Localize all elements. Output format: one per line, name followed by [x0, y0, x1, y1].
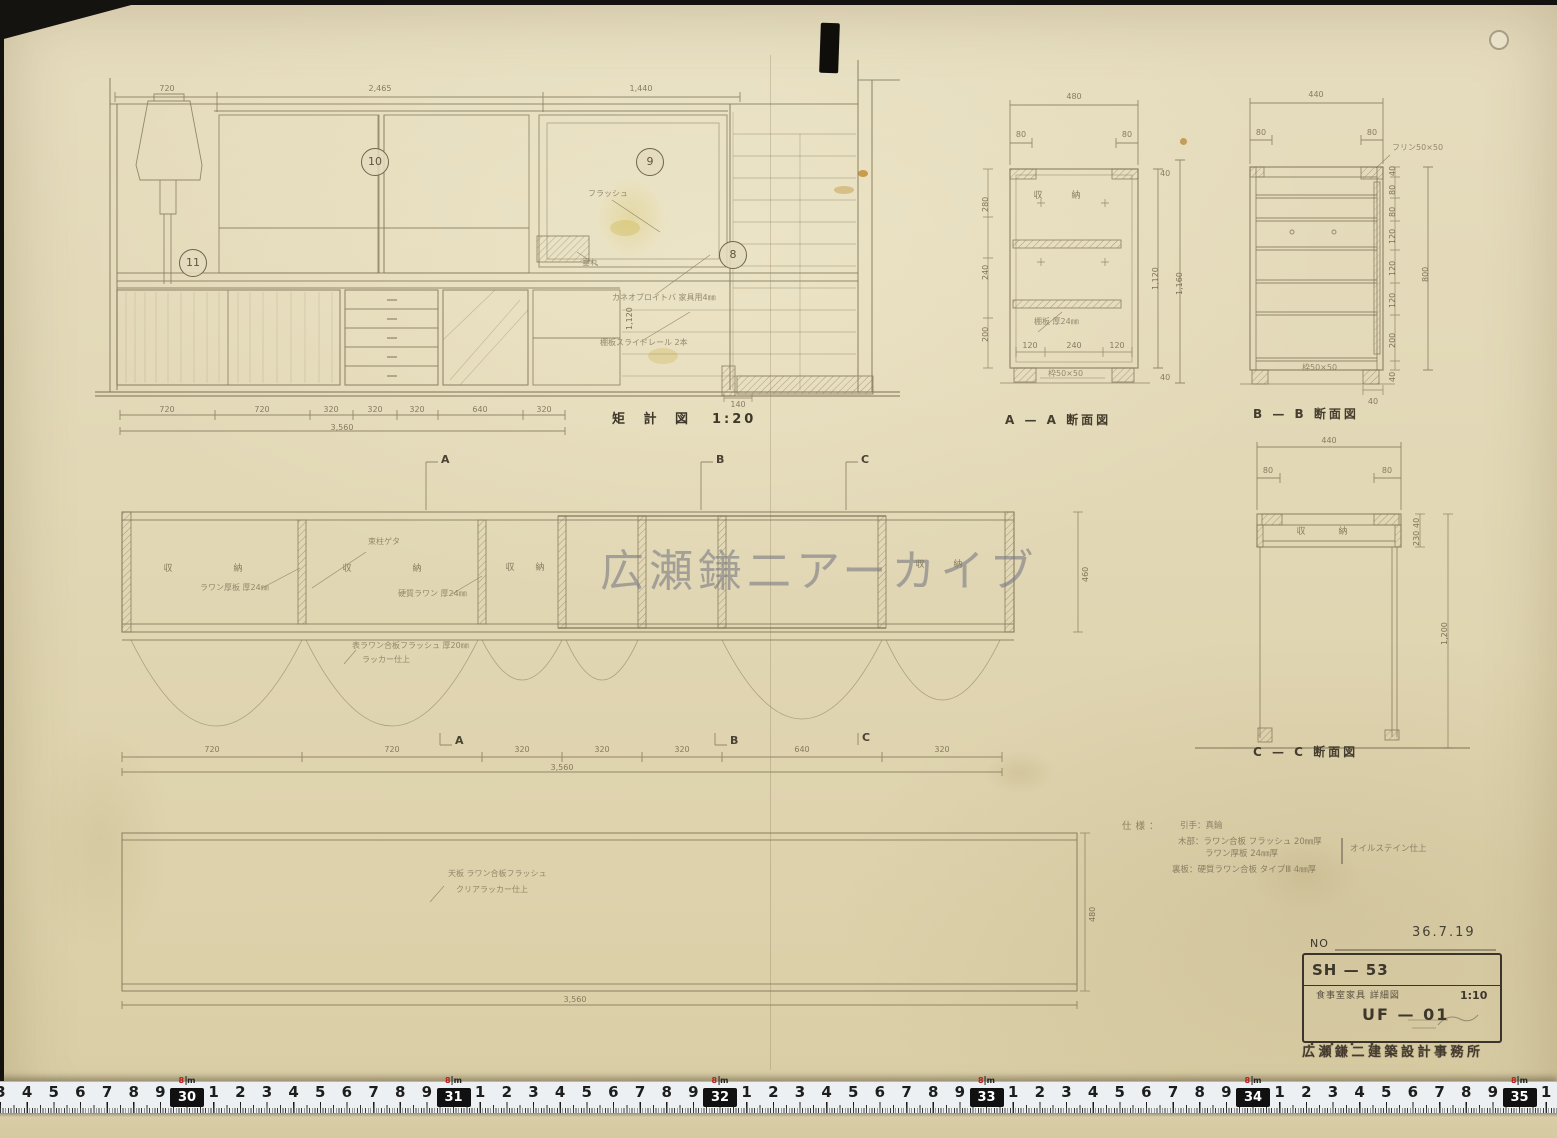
ruler-digit: 6 [608, 1083, 618, 1101]
annotation: クリアラッカー仕上 [456, 886, 528, 895]
ruler-digit: 5 [1115, 1083, 1125, 1101]
ruler-digit: 6 [875, 1083, 885, 1101]
dim-label: 40 [1389, 372, 1398, 382]
annotation: 垂れ [582, 259, 598, 268]
ruler-digit: 9 [1488, 1083, 1498, 1101]
dim-label: 230 [1413, 531, 1422, 546]
spec-title: 仕様： [1122, 822, 1163, 832]
ruler-decade-label: 34 [1236, 1088, 1270, 1107]
dim-label: 3,560 [331, 424, 354, 433]
titleblock-description: 食事室家具 詳細図 [1316, 992, 1400, 1002]
dim-label: 140 [730, 401, 745, 410]
section-marker: A [441, 454, 450, 466]
annotation: 束柱ゲタ [368, 538, 400, 547]
detail-balloon: 9 [636, 148, 664, 176]
ruler-digit: 9 [422, 1083, 432, 1101]
ruler-digit: 3 [262, 1083, 272, 1101]
section-marker: B [730, 735, 738, 747]
titleblock-code: SH — 53 [1312, 962, 1389, 979]
annotation: 天板 ラワン合板フラッシュ [448, 870, 547, 879]
section-title: B — B 断面図 [1253, 408, 1359, 421]
dim-label: 720 [254, 406, 269, 415]
dim-label: 80 [1389, 185, 1398, 195]
ruler-digit: 4 [22, 1083, 32, 1101]
ruler-digit: 3 [795, 1083, 805, 1101]
ruler-meter-label: 8m [445, 1076, 462, 1085]
dim-label: 3,560 [551, 764, 574, 773]
dim-label: 320 [594, 746, 609, 755]
ruler-digit: 8 [661, 1083, 671, 1101]
ruler-digit: 3 [0, 1083, 6, 1101]
dim-label: 800 [1422, 267, 1431, 282]
dim-label: 1,120 [1152, 267, 1161, 290]
ruler-digit: 2 [768, 1083, 778, 1101]
archive-watermark: 広瀬鎌二アーカイブ [600, 535, 1038, 599]
dim-label: 3,560 [564, 996, 587, 1005]
detail-balloon: 11 [179, 249, 207, 277]
ruler-digit: 4 [555, 1083, 565, 1101]
detail-balloon: 8 [719, 241, 747, 269]
ruler-digit: 7 [1434, 1083, 1444, 1101]
annotation: フリン50×50 [1392, 144, 1443, 153]
ruler-digit: 2 [502, 1083, 512, 1101]
ruler-digit: 5 [1381, 1083, 1391, 1101]
dim-label: 1,160 [1176, 272, 1185, 295]
storage-label: 収 納 [915, 561, 972, 571]
dim-label: 80 [1367, 129, 1377, 138]
dim-label: 80 [1016, 131, 1026, 140]
ruler-decade-label: 32 [703, 1088, 737, 1107]
ruler-digit: 6 [75, 1083, 85, 1101]
dim-label: 240 [1066, 342, 1081, 351]
annotation: カネオブロイトバ 家具用4㎜ [612, 294, 716, 303]
ruler-meter-label: 8m [179, 1076, 196, 1085]
annotation: ラワン厚板 厚24㎜ [200, 584, 269, 593]
dim-label: 320 [674, 746, 689, 755]
ruler-digit: 8 [1461, 1083, 1471, 1101]
dim-label: 720 [159, 406, 174, 415]
annotation: 棚板スライドレール 2本 [600, 339, 688, 348]
dim-label: 80 [1256, 129, 1266, 138]
spec-line: 引手：真鍮 [1180, 822, 1223, 831]
storage-label: 収 納 [1296, 528, 1359, 538]
annotation: 棚板 厚24㎜ [1034, 318, 1079, 327]
ruler-digit: 1 [208, 1083, 218, 1101]
ruler-digit: 9 [688, 1083, 698, 1101]
dim-label: 1,200 [1441, 622, 1450, 645]
storage-label: 収 納 [163, 565, 268, 575]
ruler-digit: 2 [235, 1083, 245, 1101]
dim-label: 320 [367, 406, 382, 415]
ruler-digit: 1 [1541, 1083, 1551, 1101]
dim-label: 200 [982, 327, 991, 342]
spec-line: ラワン厚板 24㎜厚 [1205, 850, 1278, 859]
spec-line: オイルステイン仕上 [1350, 845, 1427, 854]
ruler-digit: 6 [1408, 1083, 1418, 1101]
dim-label: 320 [409, 406, 424, 415]
ruler-digit: 5 [582, 1083, 592, 1101]
ruler-digit: 4 [1088, 1083, 1098, 1101]
dim-label: 720 [384, 746, 399, 755]
titleblock-date: 36.7.19 [1412, 926, 1476, 940]
dim-label: 640 [472, 406, 487, 415]
ruler-digit: 5 [49, 1083, 59, 1101]
drawing-scale: 1:20 [712, 413, 756, 427]
elevation-drawing [95, 60, 900, 435]
ruler-meter-label: 8m [1245, 1076, 1262, 1085]
spec-line: 木部：ラワン合板 フラッシュ 20㎜厚 [1178, 838, 1322, 847]
ruler-digit: 6 [342, 1083, 352, 1101]
dim-label: 40 [1160, 170, 1170, 179]
section-title: A — A 断面図 [1005, 414, 1111, 427]
office-stamp: 広瀬鎌二建築設計事務所 [1302, 1046, 1484, 1060]
section-title: C — C 断面図 [1253, 746, 1358, 759]
ruler-digit: 4 [288, 1083, 298, 1101]
dim-label: 40 [1368, 398, 1378, 407]
dim-label: 460 [1082, 567, 1091, 582]
ruler-digit: 7 [368, 1083, 378, 1101]
dim-label: 200 [1389, 333, 1398, 348]
ruler-digit: 9 [955, 1083, 965, 1101]
ruler-digit: 2 [1301, 1083, 1311, 1101]
dim-label: 320 [514, 746, 529, 755]
ruler-meter-label: 8m [1511, 1076, 1528, 1085]
ruler-digit: 4 [1354, 1083, 1364, 1101]
annotation: ラッカー仕上 [362, 656, 410, 665]
ruler-digit: 1 [1274, 1083, 1284, 1101]
ruler-digit: 7 [102, 1083, 112, 1101]
ruler-digit: 7 [901, 1083, 911, 1101]
storage-label: 収 納 [1033, 192, 1090, 202]
titleblock-drawing-number: UF — 01 [1362, 1006, 1449, 1024]
measuring-tape: 3456789308m123456789318m123456789328m123… [0, 1081, 1557, 1114]
dim-label: 80 [1382, 467, 1392, 476]
ruler-digit: 7 [635, 1083, 645, 1101]
ruler-meter-label: 8m [712, 1076, 729, 1085]
annotation: 枠50×50 [1302, 364, 1337, 373]
section-marker: C [862, 732, 870, 744]
ruler-digit: 1 [1008, 1083, 1018, 1101]
section-cc-drawing [1195, 442, 1470, 748]
ruler-digit: 2 [1035, 1083, 1045, 1101]
dim-label: 80 [1263, 467, 1273, 476]
ruler-digit: 3 [1061, 1083, 1071, 1101]
titleblock-no-label: NO [1310, 938, 1329, 950]
dim-label: 1,440 [630, 85, 653, 94]
dim-label: 120 [1389, 229, 1398, 244]
drawing-title: 矩 計 図 [612, 413, 695, 427]
dim-label: 120 [1389, 261, 1398, 276]
ruler-digit: 1 [475, 1083, 485, 1101]
storage-label: 収 納 [342, 565, 447, 575]
ruler-meter-label: 8m [978, 1076, 995, 1085]
dim-label: 320 [323, 406, 338, 415]
dim-label: 480 [1089, 907, 1098, 922]
ruler-digit: 9 [155, 1083, 165, 1101]
ruler-digit: 8 [128, 1083, 138, 1101]
annotation: 表ラワン合板フラッシュ 厚20㎜ [352, 642, 469, 651]
dim-label: 320 [934, 746, 949, 755]
dim-label: 720 [204, 746, 219, 755]
dim-label: 80 [1122, 131, 1132, 140]
dim-label: 40 [1413, 518, 1422, 528]
section-aa-drawing [983, 100, 1185, 383]
spec-line: 裏板：硬質ラワン合板 タイプⅢ 4㎜厚 [1172, 866, 1316, 875]
dim-label: 2,465 [369, 85, 392, 94]
scanned-drawing-sheet: 広瀬鎌二アーカイブ 720 2,465 1,440 10 9 11 8 フラッシ… [0, 0, 1557, 1138]
dim-label: 440 [1308, 91, 1323, 100]
dim-label: 320 [536, 406, 551, 415]
section-marker: C [861, 454, 869, 466]
ruler-digit: 8 [928, 1083, 938, 1101]
annotation: 硬質ラワン 厚24㎜ [398, 590, 467, 599]
bottom-panel-drawing [122, 833, 1090, 1009]
ruler-decade-label: 31 [437, 1088, 471, 1107]
ruler-digit: 8 [1194, 1083, 1204, 1101]
detail-balloon: 10 [361, 148, 389, 176]
section-marker: A [455, 735, 464, 747]
ruler-digit: 7 [1168, 1083, 1178, 1101]
ruler-decade-label: 30 [170, 1088, 204, 1107]
ruler-decade-label: 33 [970, 1088, 1004, 1107]
ruler-digit: 6 [1141, 1083, 1151, 1101]
titleblock-divider [1302, 985, 1500, 986]
titleblock-scale: 1:10 [1460, 990, 1487, 1002]
dim-label: 120 [1109, 342, 1124, 351]
dim-label: 120 [1022, 342, 1037, 351]
annotation: フラッシュ [588, 190, 628, 199]
ruler-digit: 9 [1221, 1083, 1231, 1101]
dim-label: 40 [1389, 166, 1398, 176]
dim-label: 720 [159, 85, 174, 94]
section-marker: B [716, 454, 724, 466]
dim-label: 240 [982, 265, 991, 280]
ruler-digit: 5 [315, 1083, 325, 1101]
annotation: 枠50×50 [1048, 370, 1083, 379]
ruler-digit: 3 [1328, 1083, 1338, 1101]
ruler-digit: 5 [848, 1083, 858, 1101]
dim-label: 1,120 [626, 307, 635, 330]
dim-label: 80 [1389, 207, 1398, 217]
dim-label: 480 [1066, 93, 1081, 102]
paper-below-ruler [0, 1113, 1557, 1138]
ruler-digit: 4 [821, 1083, 831, 1101]
dim-label: 120 [1389, 293, 1398, 308]
ruler-digit: 1 [741, 1083, 751, 1101]
storage-label: 収 納 [505, 564, 550, 574]
dim-label: 280 [982, 197, 991, 212]
ruler-digit: 8 [395, 1083, 405, 1101]
dim-label: 440 [1321, 437, 1336, 446]
dim-label: 640 [794, 746, 809, 755]
dim-label: 40 [1160, 374, 1170, 383]
ruler-decade-label: 35 [1503, 1088, 1537, 1107]
ruler-digit: 3 [528, 1083, 538, 1101]
